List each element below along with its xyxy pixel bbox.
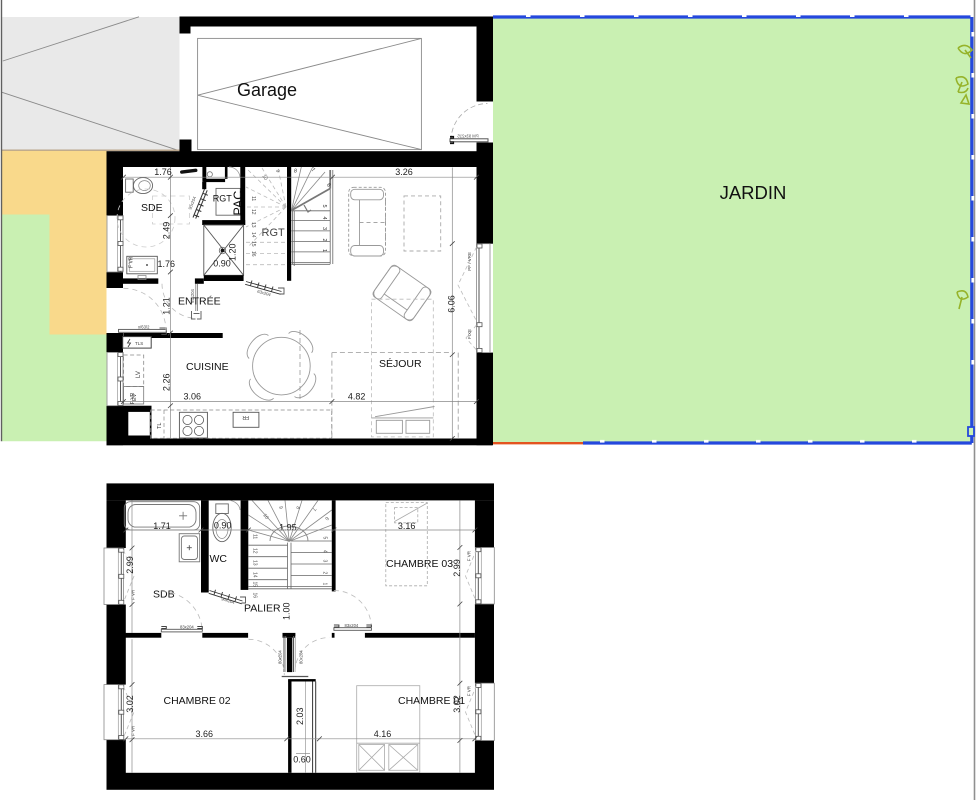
svg-text:SDB: SDB	[153, 589, 175, 601]
svg-text:2: 2	[321, 239, 327, 242]
svg-text:FIXE: FIXE	[467, 329, 472, 339]
svg-text:3: 3	[322, 560, 328, 563]
svg-text:F VR: F VR	[131, 725, 136, 736]
svg-text:5: 5	[321, 205, 327, 208]
svg-text:1.76: 1.76	[154, 167, 172, 177]
svg-text:13: 13	[250, 222, 256, 228]
svg-text:1.95: 1.95	[279, 523, 297, 533]
svg-text:3.06: 3.06	[184, 392, 202, 402]
svg-text:15: 15	[250, 241, 256, 247]
svg-text:3: 3	[321, 227, 327, 230]
svg-text:4.82: 4.82	[348, 392, 366, 402]
svg-text:LV: LV	[136, 371, 142, 378]
svg-text:3.16: 3.16	[398, 521, 416, 531]
svg-text:16: 16	[250, 251, 256, 257]
svg-text:RGT: RGT	[213, 193, 233, 203]
svg-text:1.71: 1.71	[153, 521, 171, 531]
svg-text:TL: TL	[157, 423, 163, 429]
svg-text:14: 14	[250, 232, 256, 238]
svg-text:5: 5	[322, 537, 328, 540]
svg-text:0.90: 0.90	[214, 521, 232, 531]
svg-text:1: 1	[321, 249, 327, 252]
svg-text:F VR: F VR	[131, 589, 136, 600]
svg-text:13: 13	[252, 560, 258, 566]
svg-text:6.06: 6.06	[447, 295, 457, 313]
svg-text:16: 16	[252, 593, 258, 599]
svg-text:12: 12	[252, 548, 258, 554]
svg-text:PF / VRE: PF / VRE	[467, 252, 472, 271]
svg-text:1: 1	[322, 583, 328, 586]
svg-text:F VR: F VR	[130, 392, 136, 404]
svg-text:3.02: 3.02	[125, 695, 135, 713]
svg-text:4: 4	[322, 550, 328, 553]
svg-text:PALIER: PALIER	[244, 603, 281, 615]
svg-text:2.03: 2.03	[295, 707, 305, 725]
svg-text:83x204: 83x204	[345, 623, 359, 628]
svg-text:3.02: 3.02	[452, 695, 462, 713]
svg-text:11: 11	[252, 534, 258, 539]
svg-text:14: 14	[252, 572, 258, 578]
svg-text:TLS: TLS	[135, 341, 143, 346]
svg-text:JARDIN: JARDIN	[720, 182, 787, 203]
svg-text:Garage: Garage	[237, 80, 297, 100]
svg-text:F VR: F VR	[467, 550, 472, 561]
svg-text:PM 93x215: PM 93x215	[457, 134, 479, 139]
svg-text:RGT: RGT	[262, 227, 286, 239]
svg-text:0.60: 0.60	[293, 755, 311, 765]
svg-text:CUISINE: CUISINE	[186, 361, 229, 373]
svg-text:1.00: 1.00	[282, 602, 292, 620]
svg-text:FR: FR	[242, 414, 249, 420]
svg-text:CHAMBRE 02: CHAMBRE 02	[164, 695, 231, 707]
svg-text:1.20: 1.20	[228, 243, 238, 261]
svg-text:80x204: 80x204	[299, 650, 304, 664]
svg-text:15: 15	[252, 582, 258, 588]
svg-text:2: 2	[322, 572, 328, 575]
svg-text:CHAMBRE 03: CHAMBRE 03	[386, 558, 453, 570]
svg-text:11: 11	[250, 196, 256, 201]
svg-text:12: 12	[250, 209, 256, 215]
svg-text:2.26: 2.26	[161, 374, 171, 392]
svg-text:4.16: 4.16	[374, 729, 392, 739]
svg-text:x/63/2: x/63/2	[138, 325, 150, 330]
svg-text:SDE: SDE	[141, 202, 163, 214]
svg-text:1.21: 1.21	[161, 297, 171, 315]
svg-text:SÉJOUR: SÉJOUR	[379, 357, 422, 370]
svg-text:F VR: F VR	[129, 256, 135, 268]
svg-text:2.99: 2.99	[125, 556, 135, 574]
svg-text:WC: WC	[210, 553, 228, 565]
svg-text:80x204: 80x204	[278, 650, 283, 664]
svg-text:F VR: F VR	[467, 685, 472, 696]
svg-text:2.99: 2.99	[452, 559, 462, 577]
svg-text:3.26: 3.26	[395, 167, 413, 177]
svg-text:ENTRÉE: ENTRÉE	[178, 295, 221, 308]
svg-text:2.49: 2.49	[161, 222, 171, 240]
svg-text:4: 4	[321, 217, 327, 220]
svg-text:1.76: 1.76	[158, 259, 176, 269]
svg-text:3.66: 3.66	[196, 729, 214, 739]
svg-text:83x204: 83x204	[180, 625, 194, 630]
